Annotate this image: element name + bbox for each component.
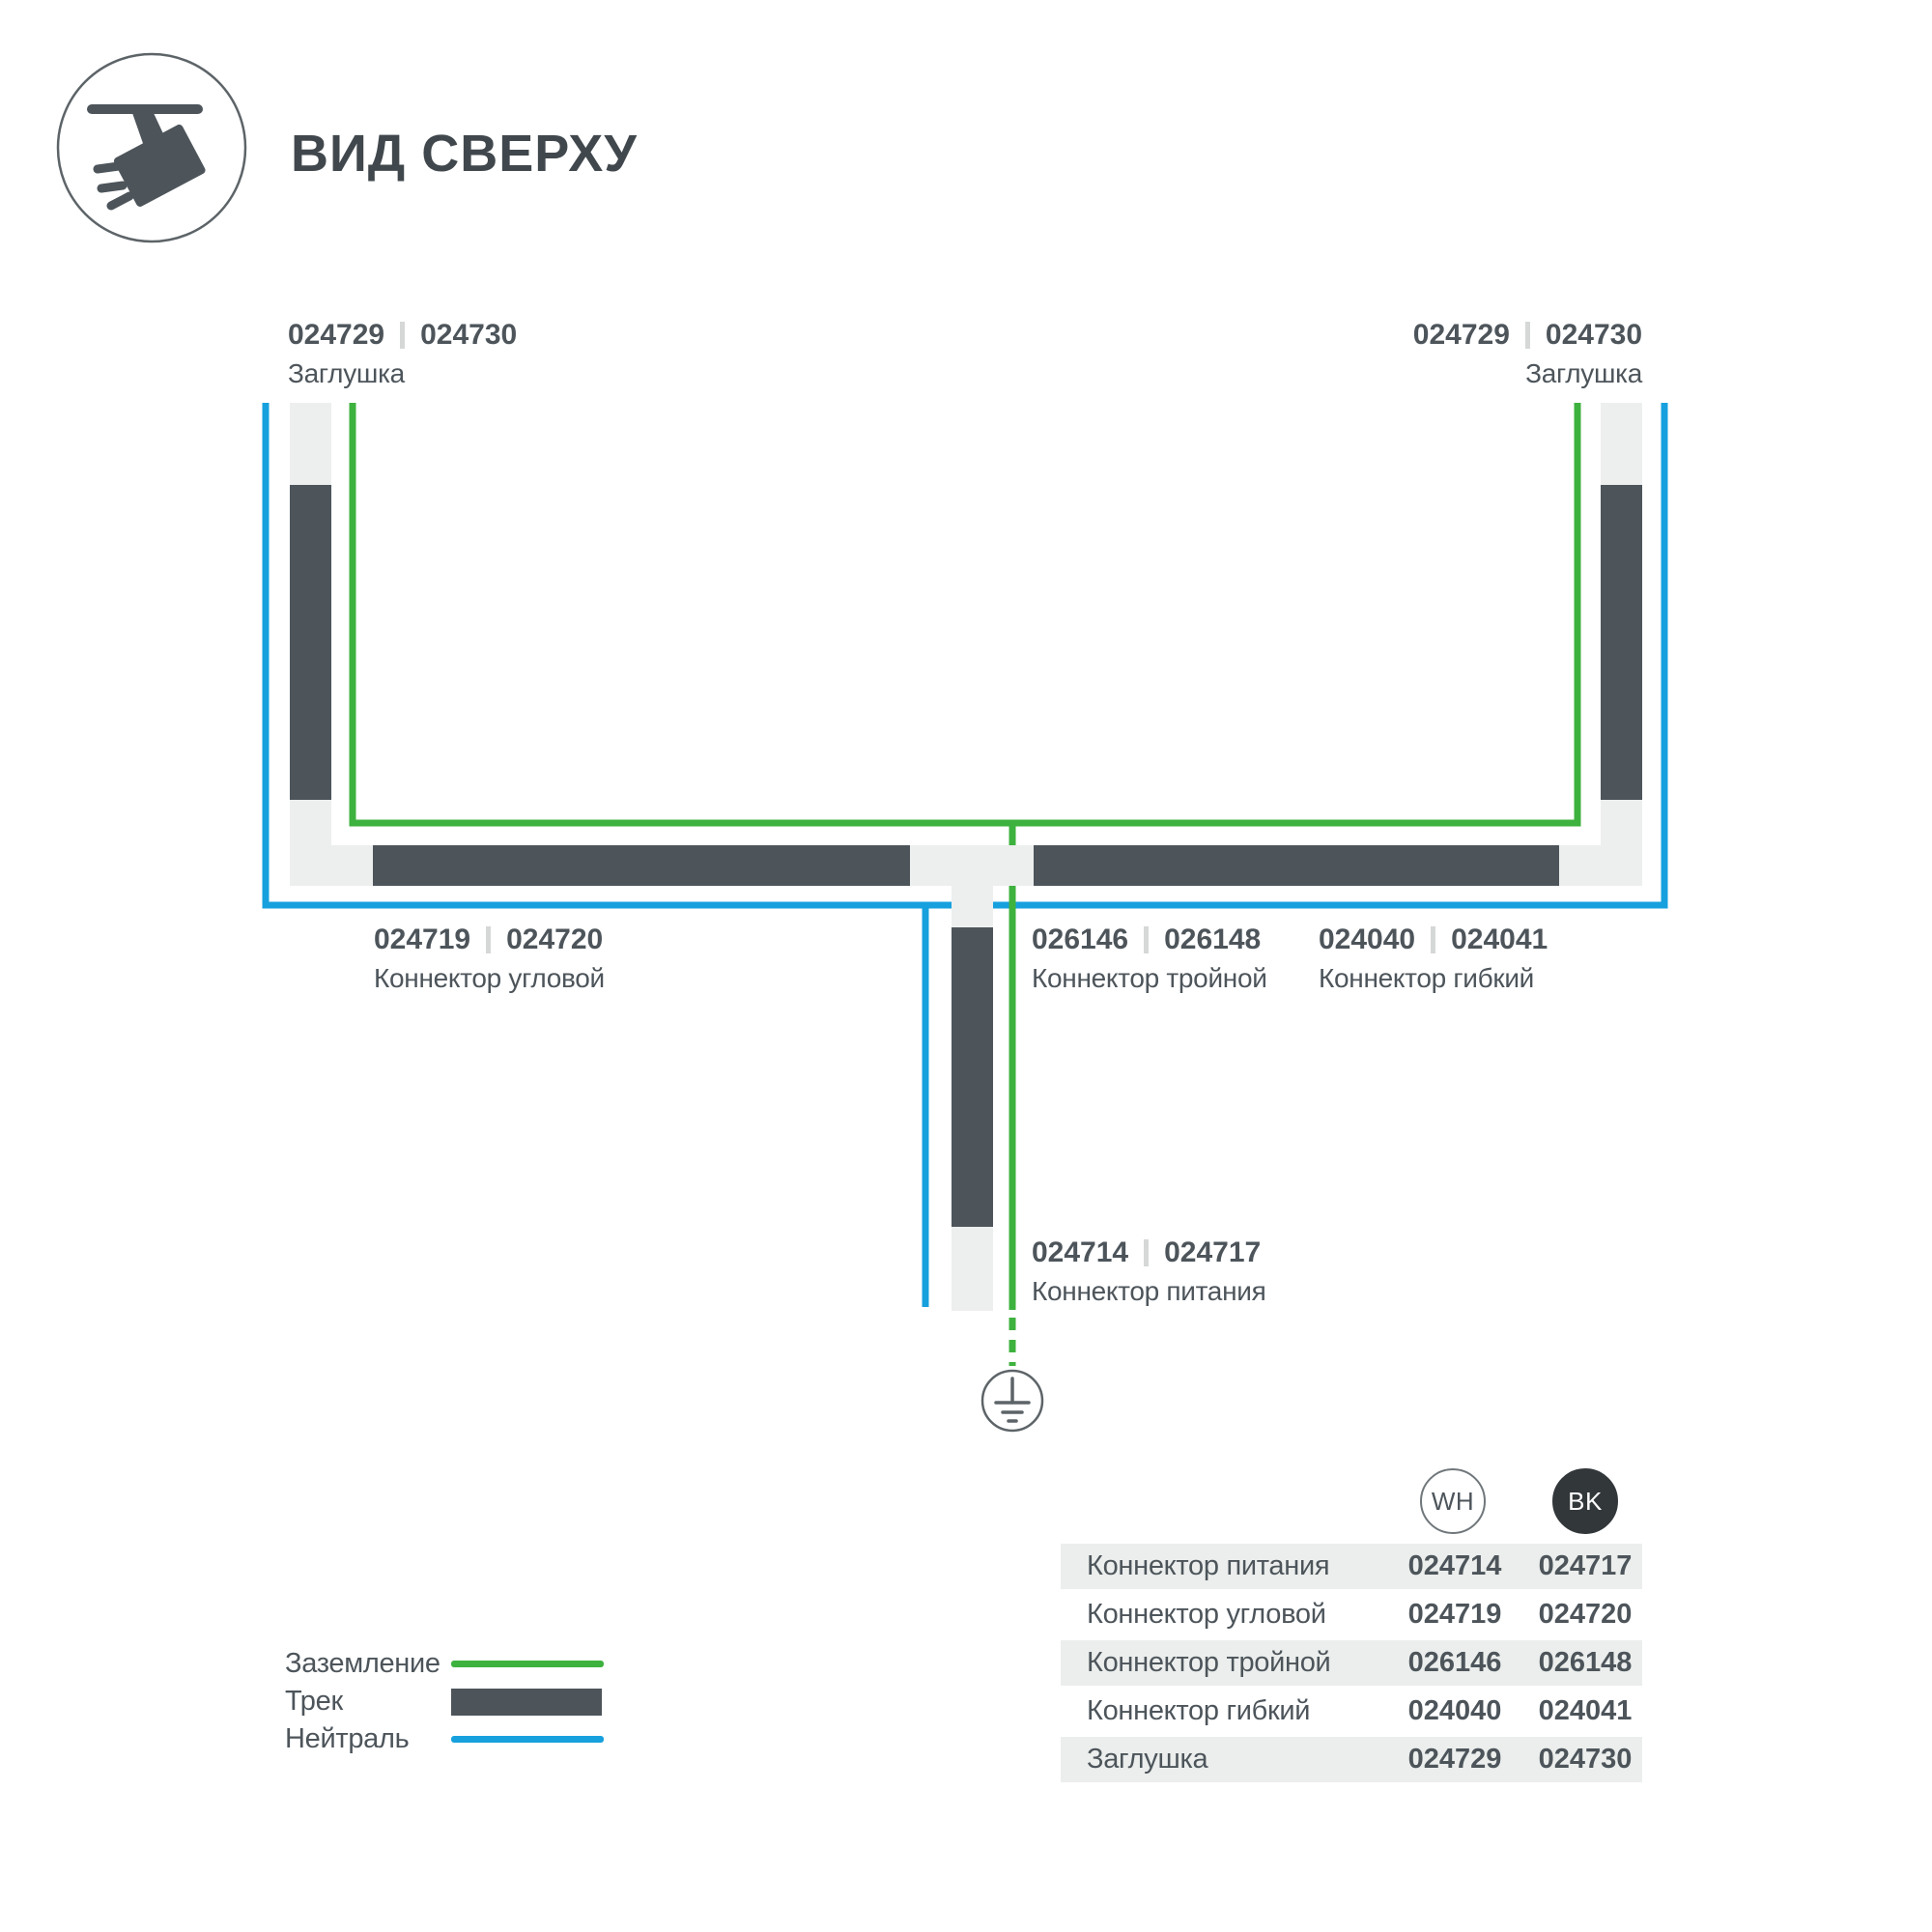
row-code-wh: 024719 bbox=[1397, 1592, 1513, 1637]
track-swatch bbox=[451, 1689, 602, 1716]
label-corner-connector: 024719 024720 Коннектор угловой bbox=[374, 923, 605, 994]
legend-item-ground: Заземление bbox=[285, 1645, 604, 1683]
earth-ground-icon bbox=[982, 1371, 1042, 1431]
row-name: Коннектор тройной bbox=[1087, 1640, 1330, 1686]
power-connector bbox=[952, 1227, 993, 1311]
endcap-left bbox=[290, 403, 331, 485]
track-segment-bottom-left bbox=[373, 845, 910, 886]
row-code-bk: 024720 bbox=[1527, 1592, 1643, 1637]
neutral-wire bbox=[266, 403, 1664, 905]
code-separator bbox=[1431, 926, 1435, 953]
part-codes: 024729 024730 bbox=[288, 319, 517, 352]
code-wh: 024714 bbox=[1032, 1236, 1128, 1269]
code-separator bbox=[1525, 322, 1530, 349]
code-separator bbox=[400, 322, 405, 349]
code-wh: 024729 bbox=[288, 319, 384, 352]
row-name: Заглушка bbox=[1087, 1737, 1207, 1782]
endcap-right bbox=[1601, 403, 1642, 485]
track-segment-feed bbox=[952, 927, 993, 1227]
row-code-wh: 024714 bbox=[1397, 1544, 1513, 1589]
page: ВИД СВЕРХУ bbox=[0, 0, 1932, 1932]
table-row: Коннектор тройной 026146 026148 bbox=[1061, 1640, 1642, 1686]
row-code-wh: 026146 bbox=[1397, 1640, 1513, 1686]
part-name: Заглушка bbox=[1413, 358, 1642, 389]
row-code-bk: 024717 bbox=[1527, 1544, 1643, 1589]
code-separator bbox=[1144, 1239, 1149, 1266]
label-triple-connector: 026146 026148 Коннектор тройной bbox=[1032, 923, 1267, 994]
row-code-wh: 024040 bbox=[1397, 1689, 1513, 1734]
code-bk: 024730 bbox=[420, 319, 517, 352]
legend-item-track: Трек bbox=[285, 1683, 604, 1720]
part-name: Заглушка bbox=[288, 358, 517, 389]
neutral-wire-swatch bbox=[451, 1736, 604, 1743]
parts-table-header: WH BK bbox=[1061, 1468, 1642, 1544]
code-bk: 024730 bbox=[1546, 319, 1642, 352]
part-codes: 024040 024041 bbox=[1319, 923, 1548, 956]
part-name: Коннектор гибкий bbox=[1319, 963, 1548, 994]
color-badge-black: BK bbox=[1552, 1468, 1618, 1534]
part-name: Коннектор питания bbox=[1032, 1276, 1265, 1307]
part-codes: 026146 026148 bbox=[1032, 923, 1267, 956]
table-row: Коннектор питания 024714 024717 bbox=[1061, 1544, 1642, 1589]
part-codes: 024729 024730 bbox=[1413, 319, 1642, 352]
part-codes: 024719 024720 bbox=[374, 923, 605, 956]
part-name: Коннектор тройной bbox=[1032, 963, 1267, 994]
row-code-wh: 024729 bbox=[1397, 1737, 1513, 1782]
legend-label: Заземление bbox=[285, 1648, 451, 1680]
ground-wire bbox=[353, 403, 1577, 823]
table-row: Коннектор гибкий 024040 024041 bbox=[1061, 1689, 1642, 1734]
label-flex-connector: 024040 024041 Коннектор гибкий bbox=[1319, 923, 1548, 994]
table-row: Коннектор угловой 024719 024720 bbox=[1061, 1592, 1642, 1637]
row-name: Коннектор угловой bbox=[1087, 1592, 1326, 1637]
legend: Заземление Трек Нейтраль bbox=[285, 1645, 604, 1758]
code-wh: 024040 bbox=[1319, 923, 1415, 956]
code-wh: 024719 bbox=[374, 923, 470, 956]
row-name: Коннектор гибкий bbox=[1087, 1689, 1310, 1734]
code-wh: 026146 bbox=[1032, 923, 1128, 956]
ground-wire-swatch bbox=[451, 1661, 604, 1667]
legend-label: Нейтраль bbox=[285, 1723, 451, 1755]
row-name: Коннектор питания bbox=[1087, 1544, 1329, 1589]
row-code-bk: 026148 bbox=[1527, 1640, 1643, 1686]
row-code-bk: 024730 bbox=[1527, 1737, 1643, 1782]
track-segment-left bbox=[290, 485, 331, 800]
code-bk: 024717 bbox=[1164, 1236, 1261, 1269]
code-bk: 024041 bbox=[1451, 923, 1548, 956]
code-separator bbox=[486, 926, 491, 953]
code-separator bbox=[1144, 926, 1149, 953]
track-segment-right bbox=[1601, 485, 1642, 800]
row-code-bk: 024041 bbox=[1527, 1689, 1643, 1734]
track-segment-bottom-right bbox=[1034, 845, 1559, 886]
label-power-connector: 024714 024717 Коннектор питания bbox=[1032, 1236, 1265, 1307]
flex-connector-right bbox=[1559, 800, 1642, 886]
corner-connector-left bbox=[290, 800, 373, 886]
code-wh: 024729 bbox=[1413, 319, 1510, 352]
label-endcap-left: 024729 024730 Заглушка bbox=[288, 319, 517, 389]
legend-item-neutral: Нейтраль bbox=[285, 1720, 604, 1758]
part-name: Коннектор угловой bbox=[374, 963, 605, 994]
parts-table: WH BK Коннектор питания 024714 024717 Ко… bbox=[1061, 1468, 1642, 1785]
label-endcap-right: 024729 024730 Заглушка bbox=[1413, 319, 1642, 389]
color-badge-white: WH bbox=[1420, 1468, 1486, 1534]
code-bk: 026148 bbox=[1164, 923, 1261, 956]
code-bk: 024720 bbox=[506, 923, 603, 956]
part-codes: 024714 024717 bbox=[1032, 1236, 1265, 1269]
legend-label: Трек bbox=[285, 1686, 451, 1718]
table-row: Заглушка 024729 024730 bbox=[1061, 1737, 1642, 1782]
